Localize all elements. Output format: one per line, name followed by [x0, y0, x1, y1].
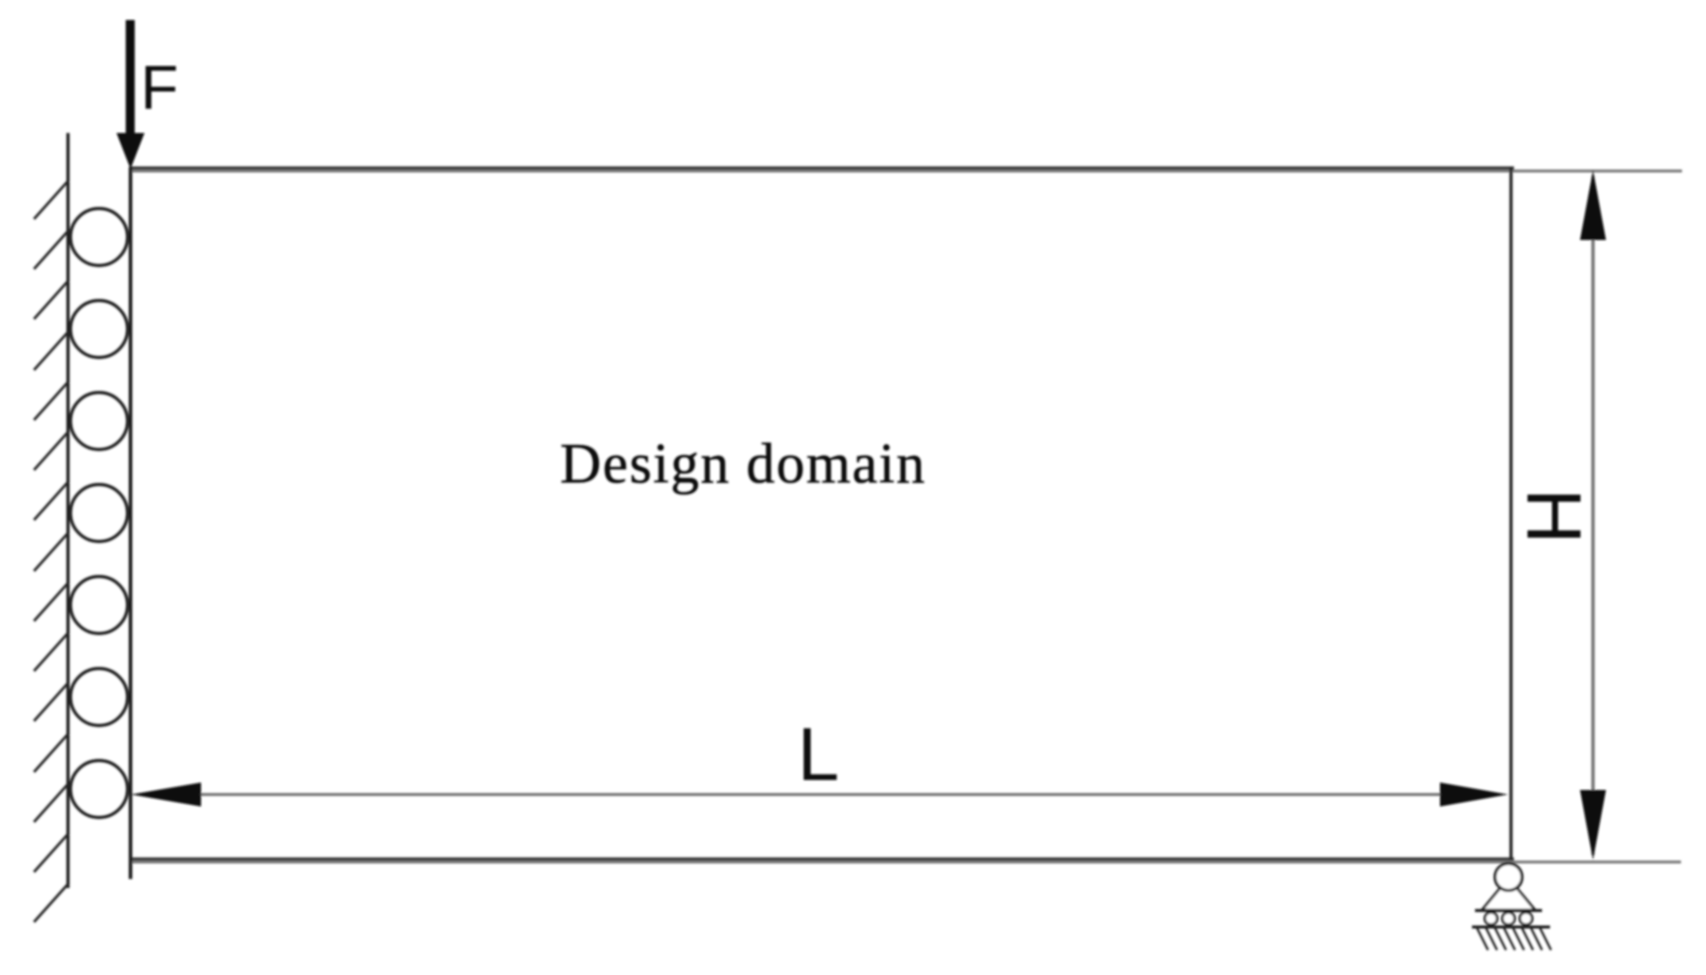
svg-text:H: H: [1511, 488, 1597, 544]
svg-text:L: L: [798, 712, 840, 796]
svg-text:Design domain: Design domain: [560, 433, 926, 496]
svg-text:F: F: [141, 54, 179, 123]
